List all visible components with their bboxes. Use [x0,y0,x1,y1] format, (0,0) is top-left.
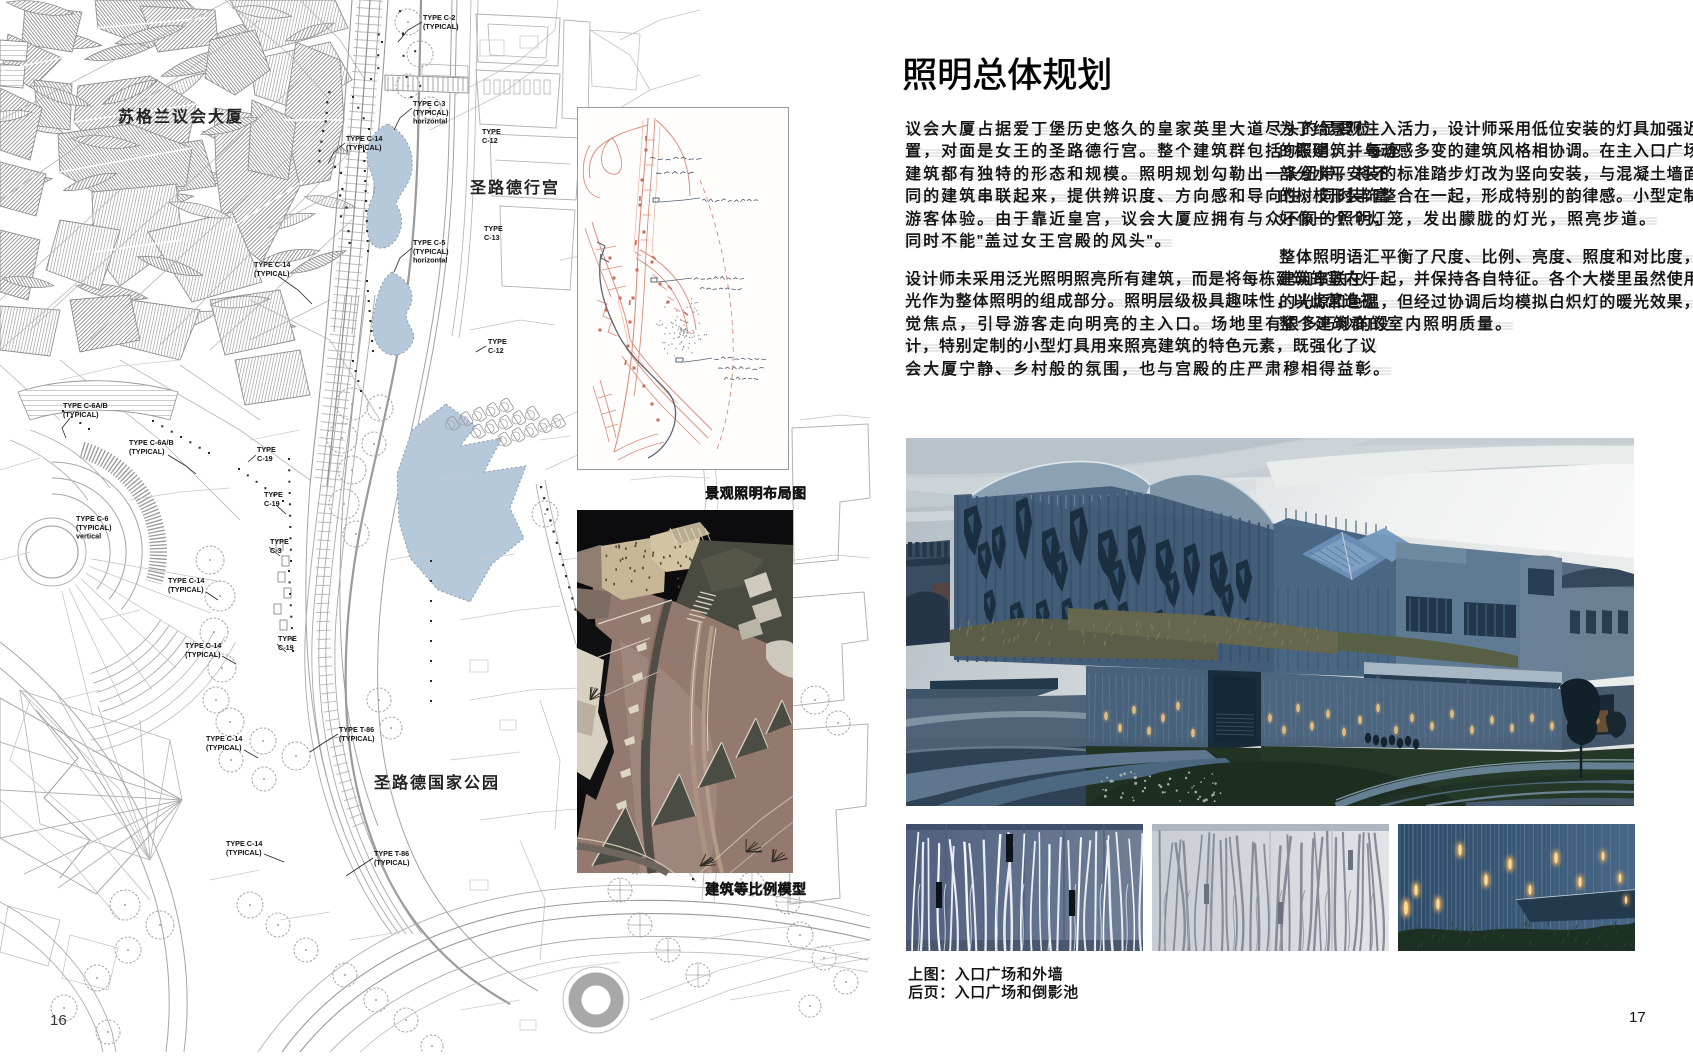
svg-text:苏格兰议会大厦: 苏格兰议会大厦 [118,107,244,126]
svg-text:(TYPICAL): (TYPICAL) [254,269,290,278]
svg-text:(TYPICAL): (TYPICAL) [374,858,410,867]
svg-text:TYPE: TYPE [488,337,507,346]
svg-text:TYPE: TYPE [278,634,297,643]
svg-text:C-19: C-19 [257,454,273,463]
svg-text:(TYPICAL): (TYPICAL) [226,848,262,857]
svg-text:(TYPICAL): (TYPICAL) [206,743,242,752]
svg-text:C-12: C-12 [488,346,504,355]
svg-text:TYPE C-14: TYPE C-14 [226,839,262,848]
svg-text:vertical: vertical [76,532,101,541]
svg-text:TYPE: TYPE [264,490,283,499]
svg-text:(TYPICAL): (TYPICAL) [413,108,449,117]
svg-text:TYPE C-14: TYPE C-14 [254,260,290,269]
svg-text:(TYPICAL): (TYPICAL) [339,734,375,743]
svg-text:(TYPICAL): (TYPICAL) [168,585,204,594]
svg-text:C-12: C-12 [482,136,498,145]
svg-text:TYPE C-3: TYPE C-3 [413,99,445,108]
svg-text:(TYPICAL): (TYPICAL) [423,22,459,31]
svg-text:TYPE C-14: TYPE C-14 [185,641,221,650]
svg-text:TYPE: TYPE [482,127,501,136]
svg-text:(TYPICAL): (TYPICAL) [346,143,382,152]
svg-text:TYPE C-6: TYPE C-6 [76,514,108,523]
svg-text:TYPE: TYPE [257,445,276,454]
svg-text:TYPE C-14: TYPE C-14 [206,734,242,743]
svg-text:horizontal: horizontal [413,256,447,265]
svg-text:C-3: C-3 [270,546,282,555]
svg-text:TYPE C-5: TYPE C-5 [413,238,445,247]
svg-text:TYPE T-86: TYPE T-86 [339,725,374,734]
svg-text:(TYPICAL): (TYPICAL) [129,447,165,456]
svg-text:horizontal: horizontal [413,117,447,126]
svg-text:TYPE: TYPE [484,224,503,233]
svg-text:TYPE: TYPE [270,537,289,546]
svg-text:圣路德国家公园: 圣路德国家公园 [373,773,500,792]
svg-text:(TYPICAL): (TYPICAL) [76,523,112,532]
svg-text:(TYPICAL): (TYPICAL) [63,410,99,419]
svg-text:TYPE C-2: TYPE C-2 [423,13,455,22]
svg-text:TYPE C-6A/B: TYPE C-6A/B [129,438,174,447]
svg-text:(TYPICAL): (TYPICAL) [185,650,221,659]
svg-text:TYPE C-6A/B: TYPE C-6A/B [63,401,108,410]
svg-text:TYPE C-14: TYPE C-14 [168,576,204,585]
svg-text:TYPE T-86: TYPE T-86 [374,849,409,858]
svg-text:TYPE C-14: TYPE C-14 [346,134,382,143]
svg-text:(TYPICAL): (TYPICAL) [413,247,449,256]
svg-text:C-13: C-13 [484,233,500,242]
svg-text:圣路德行宫: 圣路德行宫 [469,178,560,197]
